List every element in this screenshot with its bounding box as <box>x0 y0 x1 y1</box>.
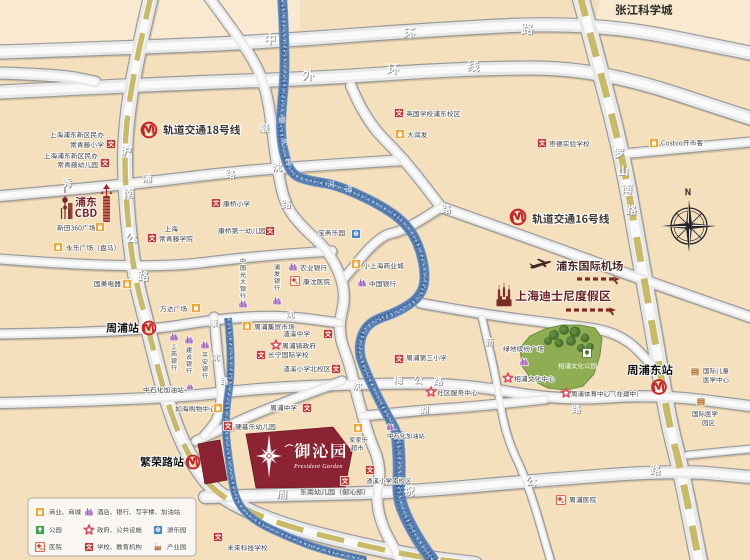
svg-text:President Garden: President Garden <box>293 464 343 470</box>
